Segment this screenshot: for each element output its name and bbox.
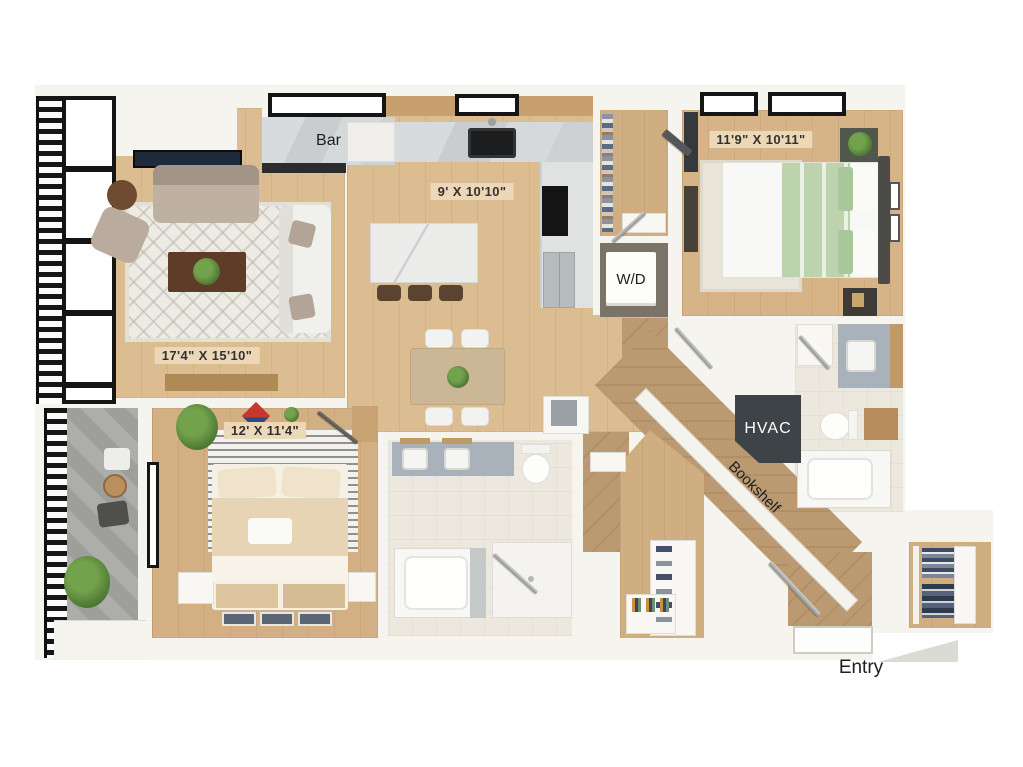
bed2-foot-throw: [283, 584, 345, 608]
hall-shoe-shelf: [590, 452, 626, 472]
balcony-chair: [104, 448, 130, 470]
toilet1-tank: [848, 410, 858, 440]
kitchen-window: [455, 94, 519, 116]
bed2-pillow: [217, 466, 277, 500]
bed2-accent-pillow: [248, 518, 292, 544]
bedroom1-window: [768, 92, 846, 116]
bathtub2-basin: [404, 556, 468, 610]
bed1-pillow-green: [838, 230, 853, 274]
vanity-trim: [400, 438, 430, 444]
bedroom2-dimensions: 12' X 11'4": [224, 422, 306, 439]
washer-dryer-label: W/D: [616, 271, 645, 288]
balcony-plant: [64, 556, 110, 608]
bathtub1-basin: [807, 458, 873, 500]
bedroom1-dimensions: 11'9" X 10'11": [709, 131, 812, 148]
bathroom2-sink: [444, 448, 470, 470]
floor-plan: 17'4" X 15'10" Bar 9' X 10'10" W/D: [0, 0, 1023, 767]
kitchen-sink: [468, 128, 516, 158]
bar-counter: [262, 163, 346, 173]
floor-artwork: [260, 612, 294, 626]
entry-step-shadow: [878, 640, 958, 662]
console-table: [165, 374, 278, 391]
dining-chair: [461, 329, 489, 348]
dining-chair: [425, 407, 453, 426]
bedroom2-plant: [176, 404, 218, 450]
bedroom2-window: [147, 462, 159, 568]
stove: [542, 186, 568, 236]
bathroom1-sink: [846, 340, 876, 372]
throw-pillow: [288, 293, 316, 321]
folded-clothes: [922, 548, 958, 578]
bar-stool: [408, 285, 432, 301]
living-structural-wall: [115, 108, 237, 156]
toilet2-bowl: [522, 454, 550, 484]
bedroom2-nightstand: [348, 572, 376, 602]
dining-chair: [425, 329, 453, 348]
bar-stool: [439, 285, 463, 301]
bathroom1-cabinet: [890, 324, 903, 388]
balcony-ledge: [54, 620, 146, 660]
kitchen-dimensions: 9' X 10'10": [431, 183, 514, 200]
balcony-railing-upper: [36, 96, 63, 404]
toilet2-tank: [521, 444, 551, 454]
wall-art: [889, 214, 900, 242]
wall-art: [889, 182, 900, 210]
closet-items: [632, 598, 670, 612]
closet-rail: [913, 546, 919, 624]
toilet1-bowl: [820, 412, 850, 440]
kitchen-faucet: [488, 118, 496, 126]
floor-artwork: [298, 612, 332, 626]
entry-door-threshold: [793, 626, 873, 654]
bathroom1-wood-shelf: [864, 408, 898, 440]
small-plant: [284, 407, 299, 422]
side-table: [107, 180, 137, 210]
shoes: [656, 546, 672, 630]
bedroom1-plant: [848, 132, 872, 156]
closet-divider: [954, 546, 976, 624]
folded-clothes: [922, 584, 958, 618]
bed1-pillow: [853, 167, 875, 211]
bedroom2-nightstand: [178, 572, 214, 604]
bar-label: Bar: [316, 132, 341, 150]
bedroom2-wardrobe: [352, 406, 378, 442]
bedroom1-window: [700, 92, 758, 116]
bathroom2-sink: [402, 448, 428, 470]
nightstand-decor: [852, 293, 864, 307]
bed2-foot-throw: [216, 584, 278, 608]
washer-dryer: W/D: [606, 252, 656, 306]
bar-window: [268, 93, 386, 117]
dining-plant: [447, 366, 469, 388]
vanity-trim: [442, 438, 472, 444]
shower-drain: [528, 576, 534, 582]
refrigerator: [543, 252, 575, 308]
coffee-table-plant: [193, 258, 220, 285]
bedroom1-desk: [684, 186, 698, 252]
bed2-sheet-fold: [212, 556, 348, 582]
floor-artwork: [222, 612, 256, 626]
bed1-pillow: [853, 230, 875, 274]
pantry-hanging-clothes: [602, 114, 613, 232]
tv-bedroom1: [684, 112, 698, 172]
bathroom1-shelf: [797, 324, 833, 366]
tub-surround: [470, 548, 486, 618]
entry-label: Entry: [839, 657, 883, 679]
bed1-pillow-green: [838, 167, 853, 211]
hvac-label: HVAC: [744, 420, 791, 438]
kitchen-cabinet-white: [347, 122, 395, 162]
bed2-pillow: [281, 466, 341, 500]
laundry-hamper: [551, 400, 577, 426]
living-room-dimensions: 17'4" X 15'10": [155, 347, 260, 364]
bar-stool: [377, 285, 401, 301]
balcony-chair: [96, 500, 129, 528]
sofa: [153, 165, 259, 223]
balcony-table: [103, 474, 127, 498]
dining-chair: [461, 407, 489, 426]
bed1-headboard: [878, 156, 890, 284]
kitchen-island: [370, 223, 478, 283]
